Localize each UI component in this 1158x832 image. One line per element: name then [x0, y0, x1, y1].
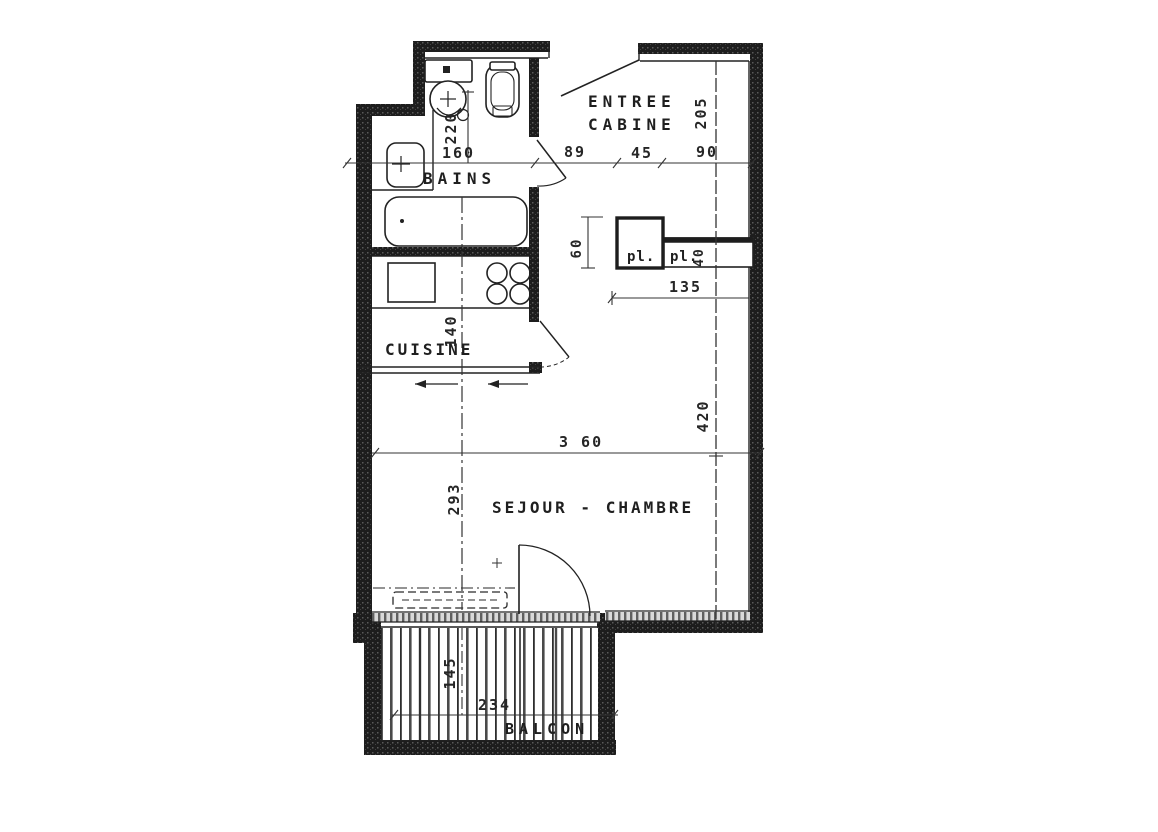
wall-top-left-stub — [413, 41, 425, 115]
entrance-door — [561, 60, 639, 96]
room-label-sejour-chambre: SEJOUR - CHAMBRE — [492, 500, 694, 516]
room-label-bains: BAINS — [423, 171, 496, 187]
wall-partition-bath — [529, 58, 539, 137]
wall-balcony-left — [364, 627, 381, 755]
wall-right — [750, 43, 763, 633]
balcony-door — [519, 545, 590, 616]
room-label-balcon: BALCON — [505, 722, 589, 737]
stove-burners — [487, 263, 530, 304]
dim-closet-depth: 60 — [570, 223, 590, 273]
floor-plan-page: ENTREE CABINE BAINS CUISINE SEJOUR - CHA… — [0, 0, 1158, 832]
wall-bottom-right — [597, 620, 760, 633]
dim-entree-seg3: 90 — [696, 145, 718, 160]
kitchen-fixtures — [388, 263, 530, 304]
dim-entree-seg1: 89 — [564, 145, 586, 160]
room-label-entree-line2: CABINE — [588, 117, 676, 133]
kitchen-arrows — [415, 380, 528, 388]
radiator — [373, 588, 515, 608]
dim-entree-seg2: 45 — [631, 146, 653, 161]
wall-balcony-bottom — [364, 740, 616, 755]
wall-left — [356, 104, 372, 624]
dim-sejour-width: 3 60 — [559, 435, 603, 450]
wall-balcony-right — [598, 613, 615, 755]
dim-balcon-depth: 145 — [443, 648, 463, 698]
wall-tub-kitchen-band — [372, 247, 529, 256]
wall-partition-kitchen — [529, 187, 539, 322]
dim-entree-depth: 205 — [694, 88, 714, 138]
dim-sejour-depth-left: 293 — [447, 474, 467, 524]
bathtub — [385, 197, 527, 246]
wall-top-left — [413, 41, 550, 52]
kitchen-door — [540, 321, 569, 367]
closet-left-label: pl. — [627, 250, 655, 264]
dim-cuisine-depth: 140 — [444, 306, 464, 356]
dim-closet-right-depth: 40 — [693, 232, 713, 282]
dim-balcon-width: 234 — [478, 698, 511, 713]
window-sejour-balcony — [372, 613, 600, 622]
floor-plan-linework — [0, 0, 1158, 832]
room-label-entree-line1: ENTREE — [588, 94, 676, 110]
window-bands — [372, 611, 750, 622]
washbasin — [387, 143, 424, 187]
wall-top-right — [638, 43, 763, 54]
window-bottom-right — [605, 612, 750, 621]
dim-wc-depth: 220 — [444, 103, 464, 153]
bidet — [486, 62, 519, 117]
dim-closets-width: 135 — [669, 280, 702, 295]
kitchen-sink-unit — [388, 263, 435, 302]
dim-sejour-depth-right: 420 — [696, 391, 716, 441]
